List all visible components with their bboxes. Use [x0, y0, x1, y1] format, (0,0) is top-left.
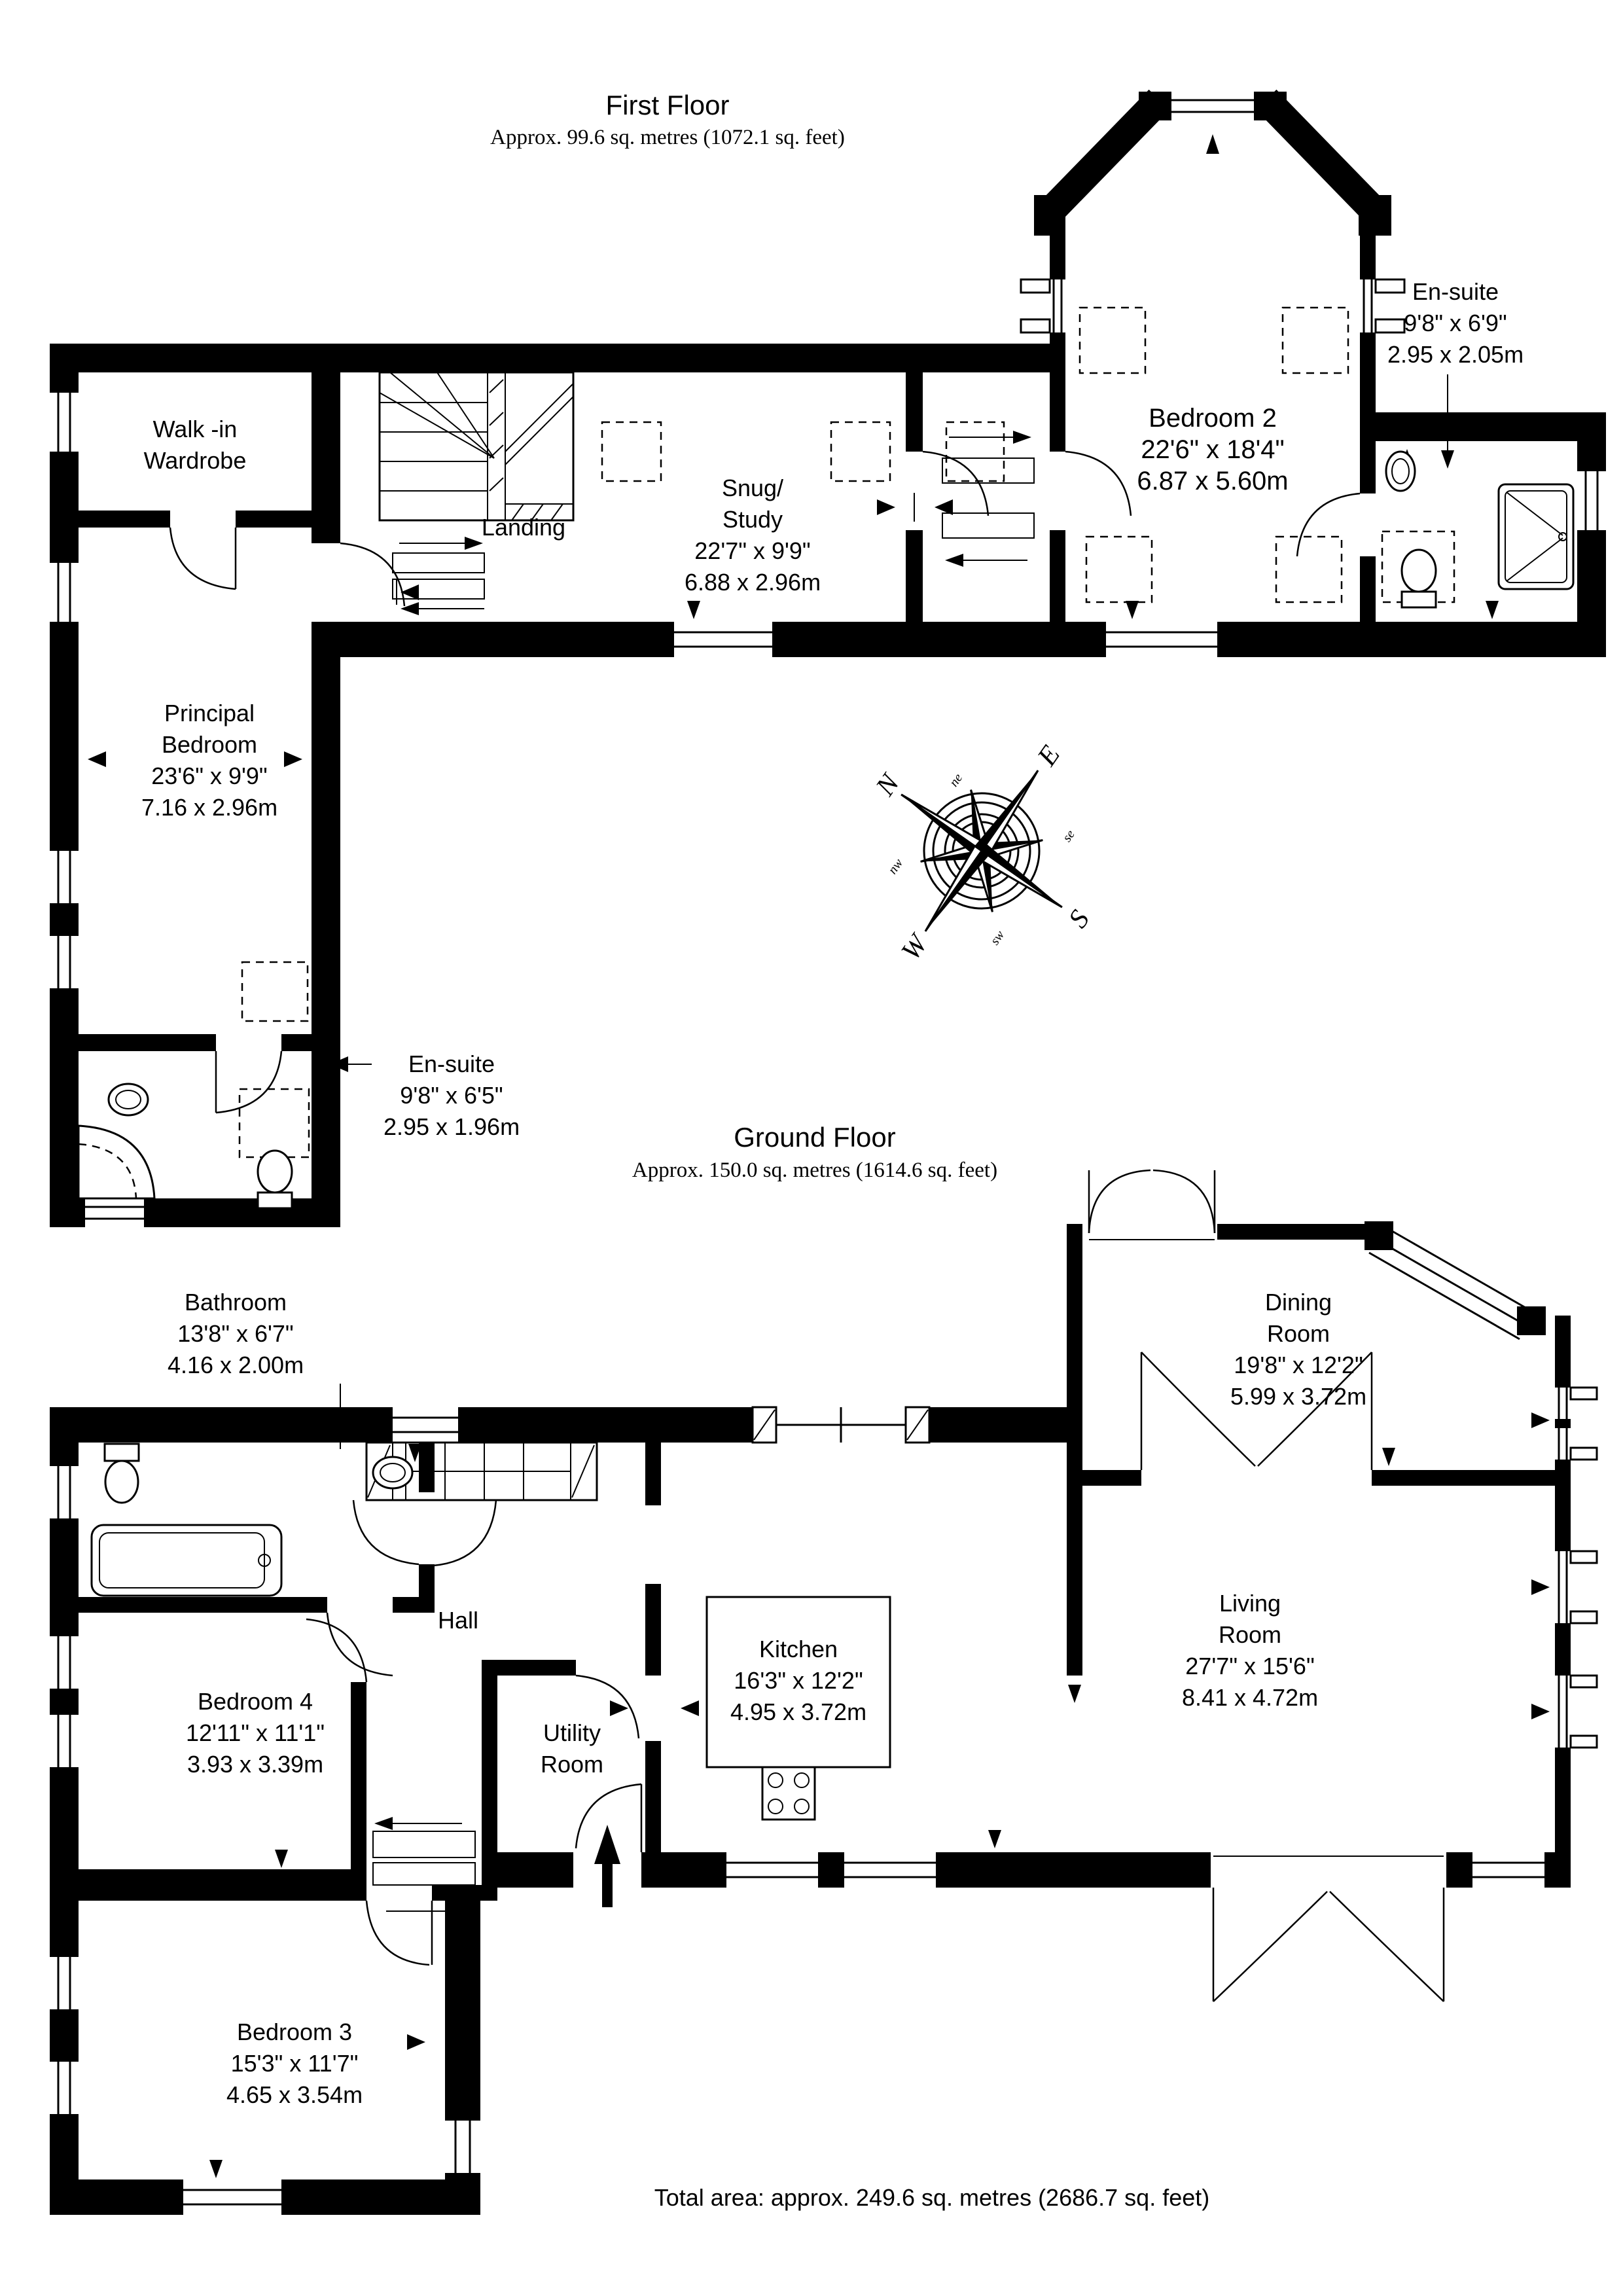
hob-fixture	[762, 1767, 815, 1820]
compass-s: S	[1063, 905, 1096, 934]
door-tick	[681, 1700, 699, 1716]
kitchen-wall	[645, 1584, 661, 1676]
door-tick	[610, 1700, 628, 1716]
room-label-dining: Dining Room 19'8" x 12'2" 5.99 x 3.72m	[1230, 1289, 1366, 1410]
sink-fixture	[1386, 452, 1415, 491]
room-name: Bedroom	[162, 731, 257, 758]
door-tick	[407, 2034, 425, 2050]
room-name: Bedroom 3	[237, 2018, 352, 2045]
bathroom-wall	[419, 1564, 435, 1613]
room-name: Bedroom 4	[198, 1688, 313, 1715]
bedroom4-wall	[50, 1869, 366, 1885]
door	[353, 1500, 419, 1564]
window-tick	[1126, 601, 1139, 619]
toilet-fixture	[1402, 550, 1436, 607]
room-name: En-suite	[1412, 278, 1499, 305]
room-dims: 12'11" x 11'1"	[186, 1719, 325, 1746]
room-dims: 2.95 x 1.96m	[383, 1113, 520, 1140]
room-dims: 23'6" x 9'9"	[151, 762, 267, 789]
room-label-principal-bedroom: Principal Bedroom 23'6" x 9'9" 7.16 x 2.…	[141, 700, 277, 821]
first-floor-area: Approx. 99.6 sq. metres (1072.1 sq. feet…	[490, 126, 845, 149]
room-label-utility: Utility Room	[541, 1719, 603, 1778]
room-dims: 4.65 x 3.54m	[226, 2081, 363, 2108]
landing-opening	[312, 543, 340, 622]
compass-rose: N E S W ne se sw nw	[802, 674, 1164, 1033]
window-tick	[988, 1830, 1001, 1848]
room-dims: 8.41 x 4.72m	[1182, 1684, 1318, 1711]
bathtub-fixture	[92, 1525, 281, 1596]
room-label-living: Living Room 27'7" x 15'6" 8.41 x 4.72m	[1182, 1590, 1318, 1711]
room-label-bedroom4: Bedroom 4 12'11" x 11'1" 3.93 x 3.39m	[186, 1688, 325, 1778]
room-dims: 3.93 x 3.39m	[187, 1751, 323, 1778]
window	[1021, 279, 1404, 332]
window-tick	[1206, 134, 1219, 154]
door-gap	[1360, 493, 1376, 556]
total-area-text: Total area: approx. 249.6 sq. metres (26…	[654, 2184, 1209, 2211]
french-doors	[1089, 1170, 1215, 1240]
wardrobe-wall	[79, 511, 170, 528]
window	[1577, 471, 1606, 530]
room-dims: 2.95 x 2.05m	[1387, 341, 1524, 368]
window-tick	[1068, 1685, 1081, 1703]
door	[1065, 452, 1131, 516]
room-dims: 27'7" x 15'6"	[1185, 1653, 1314, 1679]
snug-lobby-wall	[906, 372, 923, 452]
wardrobe-wall	[236, 511, 312, 528]
room-name: Room	[1219, 1621, 1281, 1648]
room-name: Principal	[164, 700, 255, 726]
room-label-ensuite-principal: En-suite 9'8" x 6'5" 2.95 x 1.96m	[330, 1050, 520, 1140]
compass-nw: nw	[885, 855, 906, 876]
front-door	[573, 1784, 641, 1907]
compass-n: N	[870, 768, 906, 802]
room-label-snug-study: Snug/ Study 22'7" x 9'9" 6.88 x 2.96m	[685, 475, 821, 596]
ground-floor-header: Ground Floor Approx. 150.0 sq. metres (1…	[632, 1122, 997, 1182]
door	[327, 1613, 393, 1676]
room-name: Living	[1219, 1590, 1281, 1617]
ensuite1-wall	[281, 1034, 312, 1051]
sink-fixture	[373, 1457, 412, 1488]
room-dims: 4.16 x 2.00m	[168, 1352, 304, 1378]
lobby-steps	[942, 431, 1034, 567]
room-name: Bathroom	[185, 1289, 287, 1316]
window-tick	[1486, 601, 1499, 619]
first-floor-bottom-wall	[340, 622, 1606, 657]
room-label-bedroom3: Bedroom 3 15'3" x 11'7" 4.65 x 3.54m	[226, 2018, 363, 2108]
room-name: Utility	[543, 1719, 601, 1746]
first-floor-plan: Walk -in Wardrobe Landing Snug/ Study 22…	[50, 92, 1606, 1227]
window-tick	[209, 2160, 223, 2178]
room-dims: 7.16 x 2.96m	[141, 794, 277, 821]
compass-se: se	[1060, 827, 1078, 844]
floorplan-page: First Floor Approx. 99.6 sq. metres (107…	[0, 0, 1623, 2296]
door	[1297, 493, 1360, 556]
window-tick	[687, 601, 700, 619]
window	[1171, 92, 1254, 120]
utility-wall	[497, 1660, 576, 1676]
room-name: Snug/	[722, 475, 783, 501]
ground-floor-area: Approx. 150.0 sq. metres (1614.6 sq. fee…	[632, 1158, 997, 1182]
door	[366, 1901, 429, 1965]
window-tick	[275, 1850, 288, 1868]
sink-fixture	[109, 1084, 148, 1115]
room-name: En-suite	[408, 1050, 495, 1077]
room-dims: 6.88 x 2.96m	[685, 569, 821, 596]
room-dims: 16'3" x 12'2"	[734, 1667, 863, 1694]
room-name: Wardrobe	[144, 447, 247, 474]
bedroom2-walls	[1034, 92, 1391, 622]
dimension-tick	[284, 751, 302, 767]
first-floor-top-wall	[340, 344, 1065, 372]
window-tick	[1382, 1448, 1395, 1466]
room-name: Room	[541, 1751, 603, 1778]
window	[1369, 1229, 1539, 1339]
toilet-fixture	[105, 1444, 139, 1503]
divider-wall	[393, 1597, 419, 1613]
room-dims: 5.99 x 3.72m	[1230, 1383, 1366, 1410]
room-label-walk-in-wardrobe: Walk -in Wardrobe	[144, 416, 247, 474]
room-name: Dining	[1265, 1289, 1332, 1316]
floorplan-svg: First Floor Approx. 99.6 sq. metres (107…	[0, 0, 1623, 2296]
first-floor-title: First Floor	[606, 90, 730, 120]
compass-star	[845, 714, 1118, 988]
room-label-hall: Hall	[438, 1607, 478, 1634]
kitchen-wall	[645, 1741, 661, 1852]
room-dims: 6.87 x 5.60m	[1137, 467, 1288, 495]
room-dims: 22'7" x 9'9"	[694, 537, 810, 564]
room-dims: 19'8" x 12'2"	[1234, 1352, 1363, 1378]
bedroom4-wall	[351, 1682, 366, 1869]
room-label-kitchen: Kitchen 16'3" x 12'2" 4.95 x 3.72m	[730, 1636, 866, 1725]
room-name: Walk -in	[153, 416, 238, 442]
dimension-tick	[88, 751, 106, 767]
ground-floor-title: Ground Floor	[734, 1122, 895, 1153]
compass-w: W	[896, 927, 935, 965]
room-dims: 13'8" x 6'7"	[177, 1320, 293, 1347]
toilet-fixture	[258, 1151, 292, 1208]
door-gap	[1050, 452, 1065, 530]
room-name: Study	[722, 506, 783, 533]
shower-fixture	[1499, 484, 1573, 589]
shower-fixture	[79, 1126, 154, 1198]
compass-e: E	[1031, 740, 1066, 772]
first-floor-header: First Floor Approx. 99.6 sq. metres (107…	[490, 90, 845, 149]
compass-ne: ne	[946, 771, 965, 789]
room-name: Kitchen	[759, 1636, 838, 1662]
divider-wall	[79, 1597, 327, 1613]
room-label-landing: Landing	[482, 514, 565, 541]
snug-lobby-wall	[906, 530, 923, 622]
room-label-bedroom2: Bedroom 2 22'6" x 18'4" 6.87 x 5.60m	[1137, 404, 1288, 495]
door	[306, 1619, 366, 1682]
kitchen-wall	[645, 1443, 661, 1505]
room-dims: 9'8" x 6'5"	[400, 1082, 503, 1109]
room-name: Bedroom 2	[1149, 404, 1277, 433]
room-dims: 15'3" x 11'7"	[231, 2050, 359, 2077]
living-wall	[1067, 1486, 1082, 1676]
ensuite2-wall	[1376, 412, 1606, 441]
bathroom-wall	[419, 1443, 435, 1492]
ensuite2-wall	[1577, 441, 1606, 622]
door-swing-marker	[877, 493, 953, 522]
room-name: Room	[1267, 1320, 1330, 1347]
ensuite1-wall	[79, 1034, 216, 1051]
french-doors	[1211, 1852, 1446, 2001]
compass-sw: sw	[988, 927, 1008, 947]
room-dims: 4.95 x 3.72m	[730, 1698, 866, 1725]
room-dims: 9'8" x 6'9"	[1404, 310, 1507, 336]
room-dims: 22'6" x 18'4"	[1141, 435, 1284, 464]
ground-floor-plan: Bathroom 13'8" x 6'7" 4.16 x 2.00m Dinin…	[50, 1170, 1597, 2215]
landing-steps	[393, 537, 484, 615]
window	[1531, 1388, 1597, 1460]
stairs-first-floor	[380, 372, 573, 520]
